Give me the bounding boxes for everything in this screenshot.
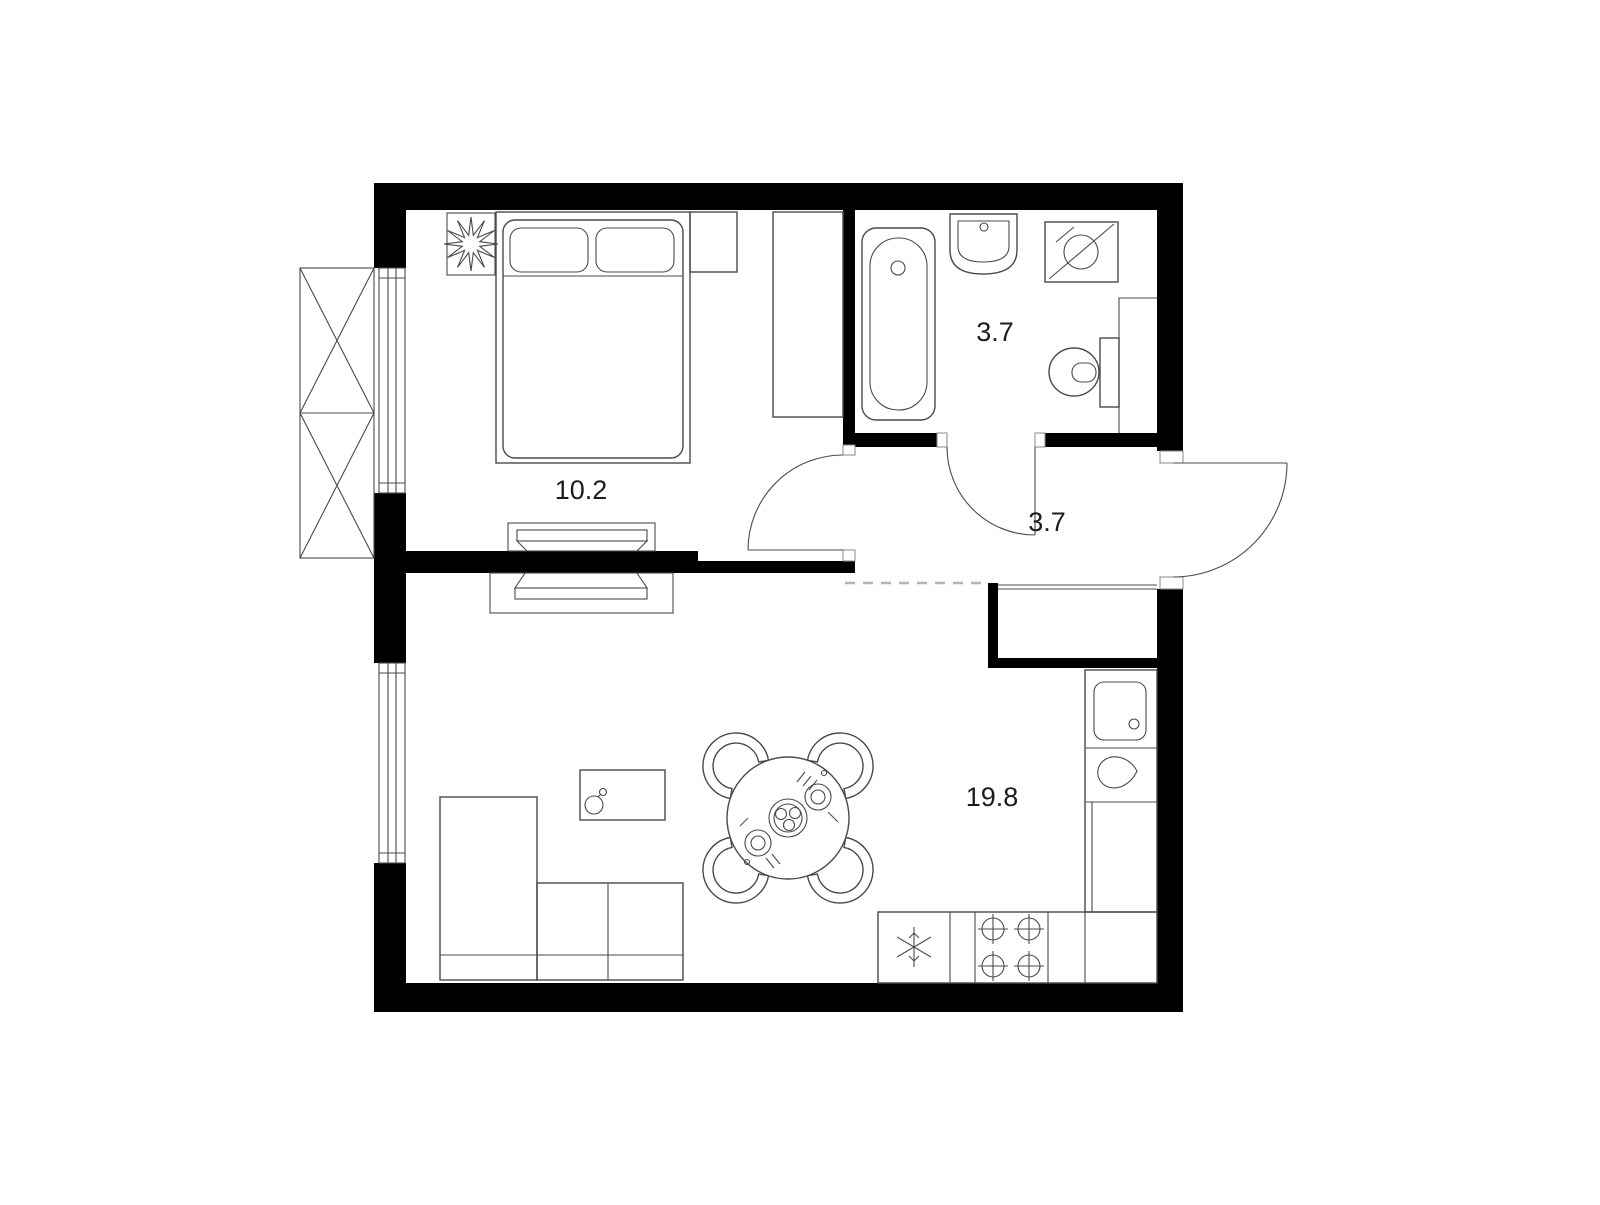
living-kitchen-area-label: 19.8	[966, 782, 1019, 812]
wall-closet-left	[988, 583, 998, 668]
coffee-table	[580, 770, 665, 820]
kitchen-sink	[1094, 682, 1146, 740]
bathtub	[862, 228, 935, 420]
service-niche	[1119, 298, 1157, 433]
wall-left-middle	[374, 493, 406, 663]
washbasin-inner	[958, 221, 1009, 262]
jamb-bathroom-door-right	[1035, 433, 1045, 447]
jamb-bedroom-door-top	[843, 445, 855, 455]
apple-icon	[585, 796, 603, 814]
bathroom-area-label: 3.7	[976, 317, 1014, 347]
room-bathroom: 3.7	[862, 214, 1157, 433]
dining-set	[703, 733, 873, 903]
fridge-snowflake-icon	[897, 927, 931, 967]
sofa-left-section	[440, 797, 537, 980]
double-bed	[496, 212, 690, 463]
tv-unit-living	[490, 573, 673, 613]
washbasin	[950, 214, 1017, 274]
tv-screen	[515, 588, 647, 599]
tv-base	[515, 573, 647, 588]
plant-icon	[444, 217, 498, 271]
window-living	[379, 663, 405, 863]
wall-bedroom-bathroom	[843, 210, 855, 445]
wall-left-upper	[374, 183, 406, 268]
wall-bathroom-south-left	[855, 433, 937, 447]
room-bedroom: 10.2	[379, 212, 843, 551]
sofa-bottom-section	[537, 883, 683, 980]
bathroom-door	[947, 447, 1035, 535]
kitchen-sink-drain	[1129, 719, 1139, 729]
pillow-left	[510, 228, 588, 272]
wall-top	[374, 183, 1183, 210]
tv-unit-bedroom	[508, 523, 655, 551]
floor-plan-drawing: 10.2 3.7	[0, 0, 1600, 1200]
plant-box	[447, 213, 495, 275]
pillow-right	[596, 228, 674, 272]
hallway-area-label: 3.7	[1028, 507, 1066, 537]
bedside-shelf	[690, 212, 737, 272]
balcony-shaft	[300, 268, 374, 558]
wall-left-lower	[374, 863, 406, 1012]
toilet	[1049, 338, 1119, 407]
wall-bedroom-south	[400, 551, 698, 573]
wall-right-upper	[1157, 183, 1183, 451]
toilet-seat	[1072, 363, 1096, 382]
window-frame	[379, 663, 405, 863]
coffee-table-top	[580, 770, 665, 820]
wall-bathroom-south-right	[1045, 433, 1157, 447]
washbasin-drain	[980, 223, 988, 231]
entrance-door	[1173, 463, 1287, 577]
bed-mattress	[503, 220, 683, 458]
corner-sofa	[440, 797, 683, 980]
bathroom-door-swing	[947, 447, 1035, 535]
plant	[444, 213, 498, 275]
kitchen-right-column	[1085, 670, 1157, 912]
toilet-bowl	[1049, 348, 1099, 396]
entrance-door-swing	[1173, 463, 1287, 577]
wardrobe	[773, 212, 843, 417]
faucet-drop-icon	[1098, 757, 1137, 788]
wall-right-lower	[1157, 589, 1183, 1012]
room-living-kitchen: 19.8	[379, 573, 1157, 983]
jamb-bedroom-door-bottom	[843, 550, 855, 561]
window-frame	[379, 268, 405, 493]
kitchen-counter-row	[878, 912, 1157, 983]
tv-screen	[517, 530, 647, 541]
toilet-tank	[1100, 338, 1119, 407]
bed-frame	[496, 212, 690, 463]
stove-burners	[978, 914, 1044, 981]
bathtub-drain	[891, 261, 905, 275]
bedroom-door	[748, 455, 843, 550]
kitchen-bottom-row	[878, 912, 1157, 983]
floor-plan-page: 10.2 3.7	[0, 0, 1600, 1200]
jamb-bathroom-door-left	[937, 433, 947, 447]
wall-hallway-south-thin	[698, 561, 855, 573]
wall-closet-bottom	[988, 658, 1157, 668]
bathtub-inner	[870, 238, 927, 410]
bedroom-door-swing	[748, 455, 843, 550]
bathtub-outer	[862, 228, 935, 420]
closet	[998, 585, 1157, 589]
window-bedroom	[379, 268, 405, 493]
jamb-entrance-top	[1160, 451, 1183, 463]
bedroom-area-label: 10.2	[555, 475, 608, 505]
tv-base	[517, 541, 647, 551]
jamb-entrance-bottom	[1160, 577, 1183, 589]
tv-stand	[490, 573, 673, 613]
washing-machine	[1045, 222, 1118, 282]
wall-bottom	[374, 983, 1183, 1012]
tv-stand	[508, 523, 655, 551]
